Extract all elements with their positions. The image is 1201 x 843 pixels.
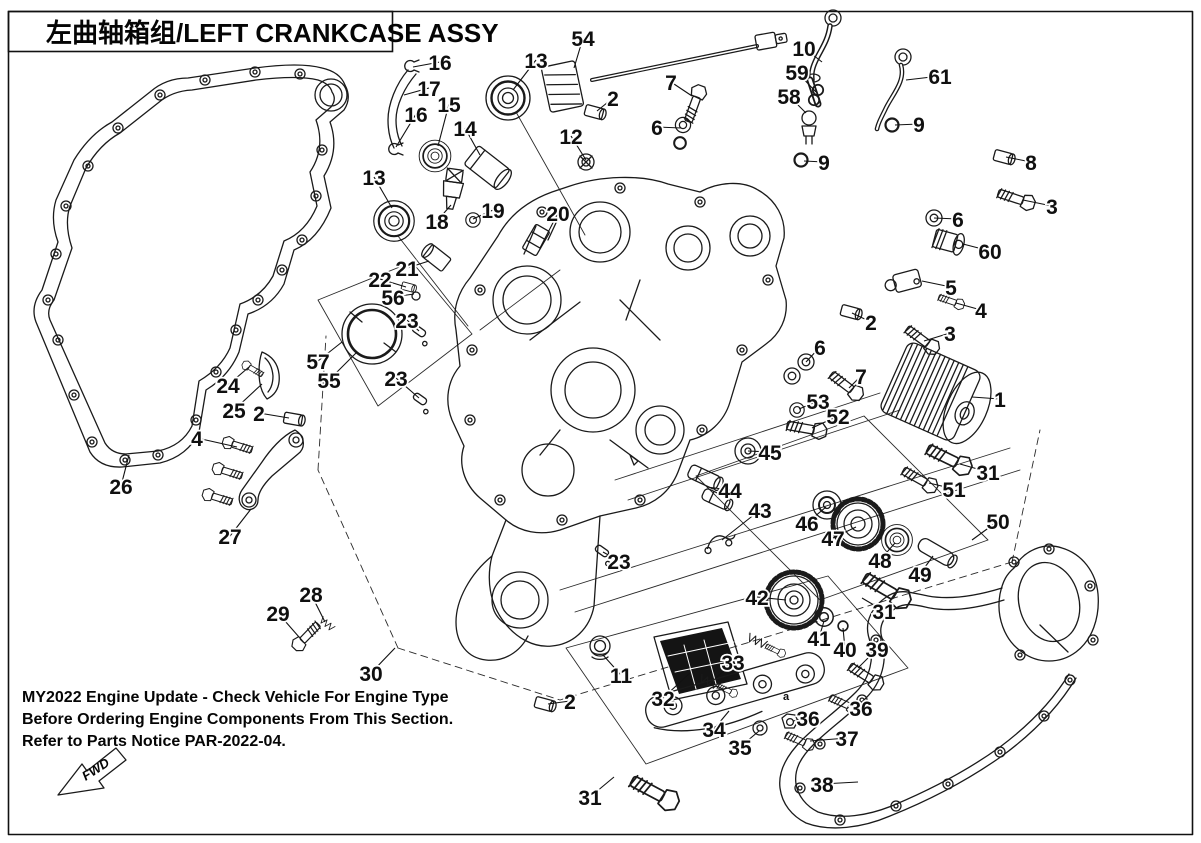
exploded-view-svg: 1617151613145427126131819201059586199836…	[0, 0, 1201, 843]
part-callout-23: 23	[395, 310, 418, 333]
part-callout-21: 21	[395, 258, 419, 281]
gasket-left-illustration	[34, 65, 348, 467]
washer-53-illustration	[790, 403, 804, 417]
diagram-canvas: 1617151613145427126131819201059586199836…	[0, 0, 1201, 843]
part-callout-60: 60	[978, 241, 1001, 264]
oring-6b-illustration	[674, 137, 686, 149]
part-callout-2: 2	[865, 312, 877, 335]
plug-11-illustration	[590, 636, 610, 659]
notice-line-1: MY2022 Engine Update - Check Vehicle For…	[22, 689, 449, 706]
part-callout-2: 2	[253, 403, 265, 426]
part-callout-48: 48	[868, 550, 892, 573]
leader-line-4	[197, 438, 237, 447]
part-callout-52: 52	[826, 406, 849, 429]
fwd-label: FWD	[79, 755, 113, 784]
part-callout-33: 33	[721, 652, 744, 675]
part-callout-7: 7	[855, 366, 867, 389]
dowel-2d-illustration	[534, 696, 557, 712]
part-callout-6: 6	[651, 117, 663, 140]
part-callout-16: 16	[404, 104, 427, 127]
part-callout-8: 8	[1025, 152, 1037, 175]
oil-filter-1-illustration	[879, 341, 1001, 451]
part-callout-39: 39	[865, 639, 888, 662]
part-callout-35: 35	[728, 737, 752, 760]
part-callout-41: 41	[807, 628, 831, 651]
crankcase-illustration	[448, 177, 786, 660]
part-callout-4: 4	[975, 300, 987, 323]
bolt-31c-illustration	[627, 771, 682, 814]
part-callout-61: 61	[928, 66, 952, 89]
clip-43-illustration	[702, 532, 738, 554]
part-callout-13: 13	[362, 167, 385, 190]
zone-lines	[318, 112, 1020, 764]
part-callout-56: 56	[381, 287, 404, 310]
title-block: 左曲轴箱组/LEFT CRANKCASE ASSY	[9, 12, 499, 52]
notice-line-2: Before Ordering Engine Components From T…	[22, 711, 453, 728]
bushing-14-illustration	[464, 145, 515, 192]
part-callout-31: 31	[578, 787, 602, 810]
part-callout-58: 58	[777, 86, 801, 109]
sensor-18-illustration	[440, 168, 465, 210]
washer-19-illustration	[466, 213, 480, 227]
part-callout-36: 36	[849, 698, 872, 721]
part-callout-45: 45	[758, 442, 782, 465]
diagram-annotation: a	[783, 691, 790, 703]
screw-24-illustration	[240, 359, 265, 379]
washer-6e-illustration	[784, 368, 800, 384]
part-callout-6: 6	[814, 337, 826, 360]
part-callout-7: 7	[665, 72, 677, 95]
part-callout-1: 1	[994, 389, 1006, 412]
part-callout-12: 12	[559, 126, 582, 149]
part-callout-23: 23	[384, 368, 407, 391]
bolt-29-illustration	[289, 619, 323, 654]
bearing-13a-illustration	[486, 76, 530, 120]
dowel-2b-illustration	[840, 304, 863, 320]
part-callout-26: 26	[109, 476, 132, 499]
part-callout-29: 29	[266, 603, 289, 626]
ring-56-illustration	[412, 292, 420, 300]
bolt-3a-illustration	[996, 185, 1037, 212]
part-callout-13: 13	[524, 50, 547, 73]
part-callout-3: 3	[1046, 196, 1058, 219]
pipe-61-illustration	[877, 49, 911, 129]
part-callout-3: 3	[944, 323, 956, 346]
part-callout-2: 2	[564, 691, 576, 714]
dowel-2a-illustration	[584, 104, 607, 120]
part-callout-50: 50	[986, 511, 1009, 534]
bolt-51-illustration	[899, 463, 940, 495]
part-callout-5: 5	[945, 277, 957, 300]
part-callout-43: 43	[748, 500, 771, 523]
part-callout-30: 30	[359, 663, 382, 686]
part-callout-18: 18	[425, 211, 449, 234]
part-callout-59: 59	[785, 62, 808, 85]
pin-23b-illustration	[409, 392, 434, 415]
washer-6a-illustration	[675, 117, 690, 132]
part-callout-10: 10	[792, 38, 815, 61]
part-callout-11: 11	[610, 665, 633, 688]
part-callout-40: 40	[833, 639, 856, 662]
fitting-58-illustration	[802, 111, 816, 144]
part-callout-27: 27	[218, 526, 241, 549]
part-callout-37: 37	[835, 728, 858, 751]
part-callout-9: 9	[913, 114, 925, 137]
notice-block: MY2022 Engine Update - Check Vehicle For…	[22, 689, 453, 750]
part-callout-14: 14	[453, 118, 477, 141]
part-callout-2: 2	[607, 88, 619, 111]
part-callout-20: 20	[546, 203, 569, 226]
part-callout-23: 23	[607, 551, 630, 574]
fwd-arrow: FWD	[58, 748, 126, 795]
notice-line-3: Refer to Parts Notice PAR-2022-04.	[22, 733, 286, 750]
part-callout-38: 38	[810, 774, 834, 797]
part-callout-42: 42	[745, 587, 768, 610]
part-callout-31: 31	[872, 601, 896, 624]
part-callout-49: 49	[908, 564, 931, 587]
gear-42-illustration	[766, 572, 822, 628]
part-callout-4: 4	[191, 428, 203, 451]
part-callout-55: 55	[317, 370, 341, 393]
part-callout-6: 6	[952, 209, 964, 232]
stud-35-illustration	[753, 721, 767, 735]
nozzle-5-illustration	[883, 269, 922, 296]
part-callout-36: 36	[796, 708, 819, 731]
oring-9b-illustration	[795, 154, 808, 167]
part-callout-9: 9	[818, 152, 830, 175]
part-callout-25: 25	[222, 400, 246, 423]
nut-12-illustration	[578, 154, 594, 170]
part-callout-47: 47	[821, 528, 844, 551]
dowel-2c-illustration	[283, 412, 306, 427]
page-title: 左曲轴箱组/LEFT CRANKCASE ASSY	[46, 18, 499, 48]
part-callout-15: 15	[437, 94, 461, 117]
part-callout-54: 54	[571, 28, 595, 51]
part-callout-19: 19	[481, 200, 504, 223]
plug-21-illustration	[419, 242, 451, 272]
part-callout-24: 24	[216, 375, 240, 398]
part-callout-46: 46	[795, 513, 818, 536]
screw-33a-illustration	[764, 642, 787, 659]
part-callout-28: 28	[299, 584, 323, 607]
bolt-52-illustration	[786, 417, 828, 440]
part-callout-31: 31	[976, 462, 1000, 485]
part-callout-34: 34	[702, 719, 726, 742]
part-callout-44: 44	[718, 480, 742, 503]
spring-28-illustration	[319, 616, 335, 631]
bearing-13b-illustration	[374, 201, 414, 241]
spring-33a-illustration	[747, 633, 768, 648]
part-callout-32: 32	[651, 688, 674, 711]
pin-8-illustration	[993, 149, 1016, 165]
part-callout-51: 51	[942, 479, 966, 502]
bearing-15-illustration	[419, 140, 451, 172]
part-callout-16: 16	[428, 52, 451, 75]
bushing-55-illustration	[342, 304, 402, 364]
